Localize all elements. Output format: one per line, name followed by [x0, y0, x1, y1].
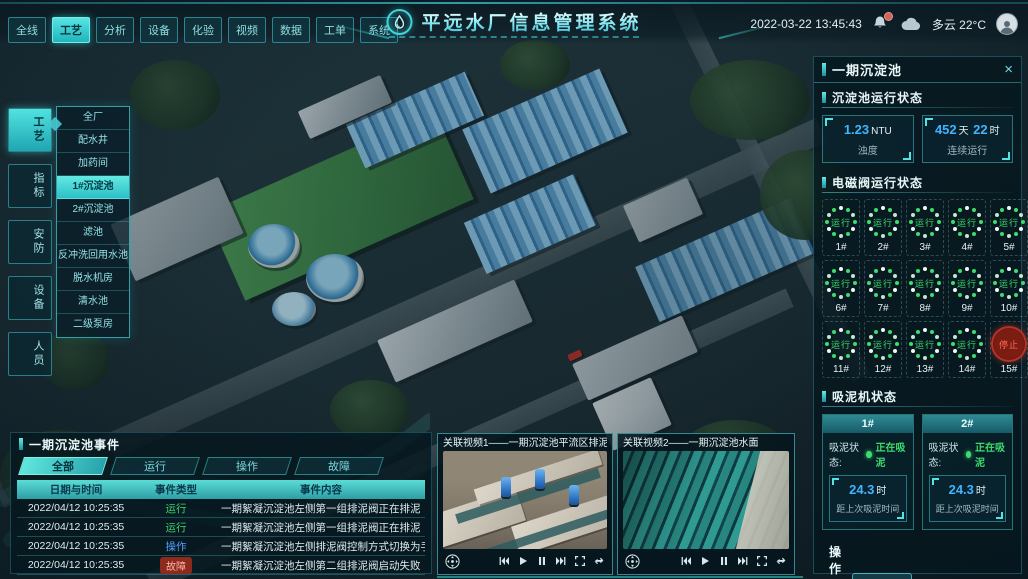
nav-tab-huayan[interactable]: 化验	[184, 17, 222, 43]
skip-back-icon[interactable]	[498, 555, 510, 567]
mud-machine-card-2: 2# 吸泥状态:正在吸泥 24.3时 距上次吸泥时间	[922, 414, 1014, 530]
events-tab-run[interactable]: 运行	[110, 457, 200, 475]
events-tabs: 全部 运行 操作 故障	[11, 455, 431, 475]
video-underline	[437, 576, 803, 578]
table-row: 2022/04/12 10:25:35 故障 一期絮凝沉淀池左侧第二组排泥阀启动…	[17, 556, 425, 575]
skip-forward-icon[interactable]	[737, 555, 749, 567]
turbidity-value: 1.23	[844, 122, 869, 137]
main-nav: 全线 工艺 分析 设备 化验 视频 数据 工单 系统	[8, 17, 398, 43]
valve-gauge: 运行10#	[990, 260, 1028, 317]
pause-icon[interactable]	[718, 555, 730, 567]
mud-machine-card-1: 1# 吸泥状态:正在吸泥 24.3时 距上次吸泥时间	[822, 414, 914, 530]
top-header: 全线 工艺 分析 设备 化验 视频 数据 工单 系统 平远水厂信息管理系统 20…	[0, 0, 1028, 44]
detail-panel: 一期沉淀池 × 沉淀池运行状态 1.23NTU 浊度 452天 22时 连续运行…	[813, 56, 1022, 574]
uptime-card: 452天 22时 连续运行	[922, 115, 1014, 163]
events-tab-operate[interactable]: 操作	[202, 457, 292, 475]
valve-gauge: 运行7#	[864, 260, 902, 317]
valve-gauge: 运行13#	[906, 321, 944, 378]
mud-status-line: 吸泥状态:正在吸泥	[923, 433, 1013, 473]
play-icon[interactable]	[517, 555, 529, 567]
video-2-title: 关联视频2——一期沉淀池水面	[623, 437, 789, 451]
mud-status-line: 吸泥状态:正在吸泥	[823, 433, 913, 473]
video-2-feed[interactable]	[623, 451, 789, 549]
valve-gauge: 运行14#	[948, 321, 986, 378]
datetime: 2022-03-22 13:45:43	[750, 17, 861, 31]
valve-gauge: 运行6#	[822, 260, 860, 317]
side-tab-renyuan[interactable]: 人员	[8, 332, 52, 376]
status-dot	[866, 451, 871, 458]
side-tab-shebei[interactable]: 设备	[8, 276, 52, 320]
events-table-header: 日期与时间 事件类型 事件内容	[17, 480, 425, 499]
menu-item-peishuijing[interactable]: 配水井	[57, 130, 129, 153]
section-header-run-status: 沉淀池运行状态	[814, 86, 1021, 108]
event-type-run: 运行	[166, 522, 187, 534]
left-category-tabs: 工艺 指标 安防 设备 人员	[8, 108, 52, 376]
blue-pump	[569, 485, 579, 505]
side-tab-zhibiao[interactable]: 指标	[8, 164, 52, 208]
valve-grid: 运行1# 运行2# 运行3# 运行4# 运行5# 运行6# 运行7# 运行8# …	[814, 193, 1021, 382]
header-right-cluster: 2022-03-22 13:45:43 多云 22°C	[750, 13, 1018, 35]
app-title-block: 平远水厂信息管理系统	[386, 8, 641, 35]
menu-item-lvchi[interactable]: 滤池	[57, 222, 129, 245]
skip-back-icon[interactable]	[680, 555, 692, 567]
loop-icon[interactable]	[593, 555, 605, 567]
nav-tab-shipin[interactable]: 视频	[228, 17, 266, 43]
accent-bar	[822, 63, 826, 76]
valve-gauge: 运行1#	[822, 199, 860, 256]
page-title: 平远水厂信息管理系统	[421, 8, 641, 35]
video-panel-2: 关联视频2——一期沉淀池水面	[617, 433, 795, 575]
event-type-run: 运行	[166, 503, 187, 515]
events-tab-all[interactable]: 全部	[18, 457, 108, 475]
accent-bar	[19, 438, 23, 450]
run-status-stats: 1.23NTU 浊度 452天 22时 连续运行	[814, 108, 1021, 168]
loop-icon[interactable]	[775, 555, 787, 567]
menu-item-qingshuichi[interactable]: 清水池	[57, 291, 129, 314]
mud-card-title: 1#	[823, 415, 913, 433]
blue-pump	[501, 477, 511, 497]
turbidity-unit: NTU	[871, 126, 892, 137]
events-table: 日期与时间 事件类型 事件内容 2022/04/12 10:25:35 运行 一…	[17, 480, 425, 575]
weather-text: 多云 22°C	[932, 16, 986, 33]
menu-item-1-chendianchi[interactable]: 1#沉淀池	[57, 176, 129, 199]
video-2-controls	[623, 549, 789, 571]
menu-item-fanchongxi[interactable]: 反冲洗回用水池	[57, 245, 129, 268]
video-1-feed[interactable]	[443, 451, 607, 549]
event-type-fault: 故障	[160, 557, 192, 574]
table-row: 2022/04/12 10:25:35 运行 一期絮凝沉淀池左侧第一组排泥阀正在…	[17, 518, 425, 537]
ptz-dpad-icon[interactable]	[625, 554, 640, 569]
nav-tab-shuju[interactable]: 数据	[272, 17, 310, 43]
valve-gauge: 运行12#	[864, 321, 902, 378]
weather-cloud-icon	[900, 17, 922, 31]
mud-stat-card: 24.3时 距上次吸泥时间	[829, 475, 907, 522]
valve-gauge: 运行8#	[906, 260, 944, 317]
turbidity-card: 1.23NTU 浊度	[822, 115, 914, 163]
notification-bell-icon[interactable]	[872, 15, 890, 33]
menu-item-erjibengfang[interactable]: 二级泵房	[57, 314, 129, 337]
menu-item-2-chendianchi[interactable]: 2#沉淀池	[57, 199, 129, 222]
operations-title: 操作与设置	[822, 543, 844, 579]
valve-gauge: 运行3#	[906, 199, 944, 256]
valve-gauge: 运行9#	[948, 260, 986, 317]
process-menu: 全厂 配水井 加药间 1#沉淀池 2#沉淀池 滤池 反冲洗回用水池 脱水机房 清…	[56, 106, 130, 338]
header-accent-line	[0, 2, 1028, 4]
valve-gauge-stopped: 停止15#	[990, 321, 1028, 378]
events-header: 一期沉淀池事件	[11, 433, 431, 455]
mud-card-title: 2#	[923, 415, 1013, 433]
valve-gauge: 运行4#	[948, 199, 986, 256]
water-drop-logo-icon	[386, 9, 412, 35]
uptime-hours: 22	[973, 122, 987, 137]
fullscreen-icon[interactable]	[574, 555, 586, 567]
turbidity-label: 浊度	[858, 142, 878, 157]
ptz-dpad-icon[interactable]	[445, 554, 460, 569]
nav-tab-gongyi[interactable]: 工艺	[52, 17, 90, 43]
shade-overlay	[623, 451, 789, 549]
side-tab-gongyi[interactable]: 工艺	[8, 108, 52, 152]
operations-section: 操作与设置 组态监控 始终显示事件:	[814, 534, 1021, 579]
uptime-hours-unit: 时	[990, 126, 1000, 137]
events-panel: 一期沉淀池事件 全部 运行 操作 故障 日期与时间 事件类型 事件内容 2022…	[10, 432, 432, 574]
uptime-label: 连续运行	[947, 142, 987, 157]
status-dot	[966, 451, 971, 458]
blue-pump	[535, 469, 545, 489]
uptime-days-unit: 天	[959, 126, 969, 137]
pause-icon[interactable]	[536, 555, 548, 567]
menu-item-quanchang[interactable]: 全厂	[57, 107, 129, 130]
user-avatar-icon[interactable]	[996, 13, 1018, 35]
video-panel-1: 关联视频1——一期沉淀池平流区排泥管廊	[437, 433, 613, 575]
side-tab-anfang[interactable]: 安防	[8, 220, 52, 264]
event-type-operate: 操作	[166, 541, 187, 553]
detail-panel-header: 一期沉淀池 ×	[814, 57, 1021, 83]
play-icon[interactable]	[699, 555, 711, 567]
nav-tab-gongdan[interactable]: 工单	[316, 17, 354, 43]
notification-badge	[884, 12, 893, 21]
mud-machines: 1# 吸泥状态:正在吸泥 24.3时 距上次吸泥时间 2# 吸泥状态:正在吸泥 …	[814, 407, 1021, 534]
fullscreen-icon[interactable]	[756, 555, 768, 567]
detail-panel-title: 一期沉淀池	[832, 60, 1004, 79]
menu-item-tuoshuijifang[interactable]: 脱水机房	[57, 268, 129, 291]
scada-monitor-button[interactable]: 组态监控	[852, 573, 912, 579]
uptime-days: 452	[935, 122, 957, 137]
table-row: 2022/04/12 10:25:35 操作 一期絮凝沉淀池左侧排泥阀控制方式切…	[17, 537, 425, 556]
nav-tab-quanxian[interactable]: 全线	[8, 17, 46, 43]
events-tab-fault[interactable]: 故障	[294, 457, 384, 475]
nav-tab-fenxi[interactable]: 分析	[96, 17, 134, 43]
mud-stat-card: 24.3时 距上次吸泥时间	[929, 475, 1007, 522]
table-row: 2022/04/12 10:25:35 运行 一期絮凝沉淀池左侧第一组排泥阀正在…	[17, 499, 425, 518]
valve-gauge: 运行5#	[990, 199, 1028, 256]
events-title: 一期沉淀池事件	[29, 436, 120, 453]
valve-gauge: 运行11#	[822, 321, 860, 378]
title-dashed-line	[389, 36, 639, 38]
valve-gauge: 运行2#	[864, 199, 902, 256]
section-header-valves: 电磁阀运行状态	[814, 171, 1021, 193]
close-icon[interactable]: ×	[1004, 62, 1013, 77]
section-header-mud: 吸泥机状态	[814, 385, 1021, 407]
video-1-controls	[443, 549, 607, 571]
skip-forward-icon[interactable]	[555, 555, 567, 567]
menu-item-jiayaojian[interactable]: 加药间	[57, 153, 129, 176]
video-1-title: 关联视频1——一期沉淀池平流区排泥管廊	[443, 437, 607, 451]
nav-tab-shebei[interactable]: 设备	[140, 17, 178, 43]
